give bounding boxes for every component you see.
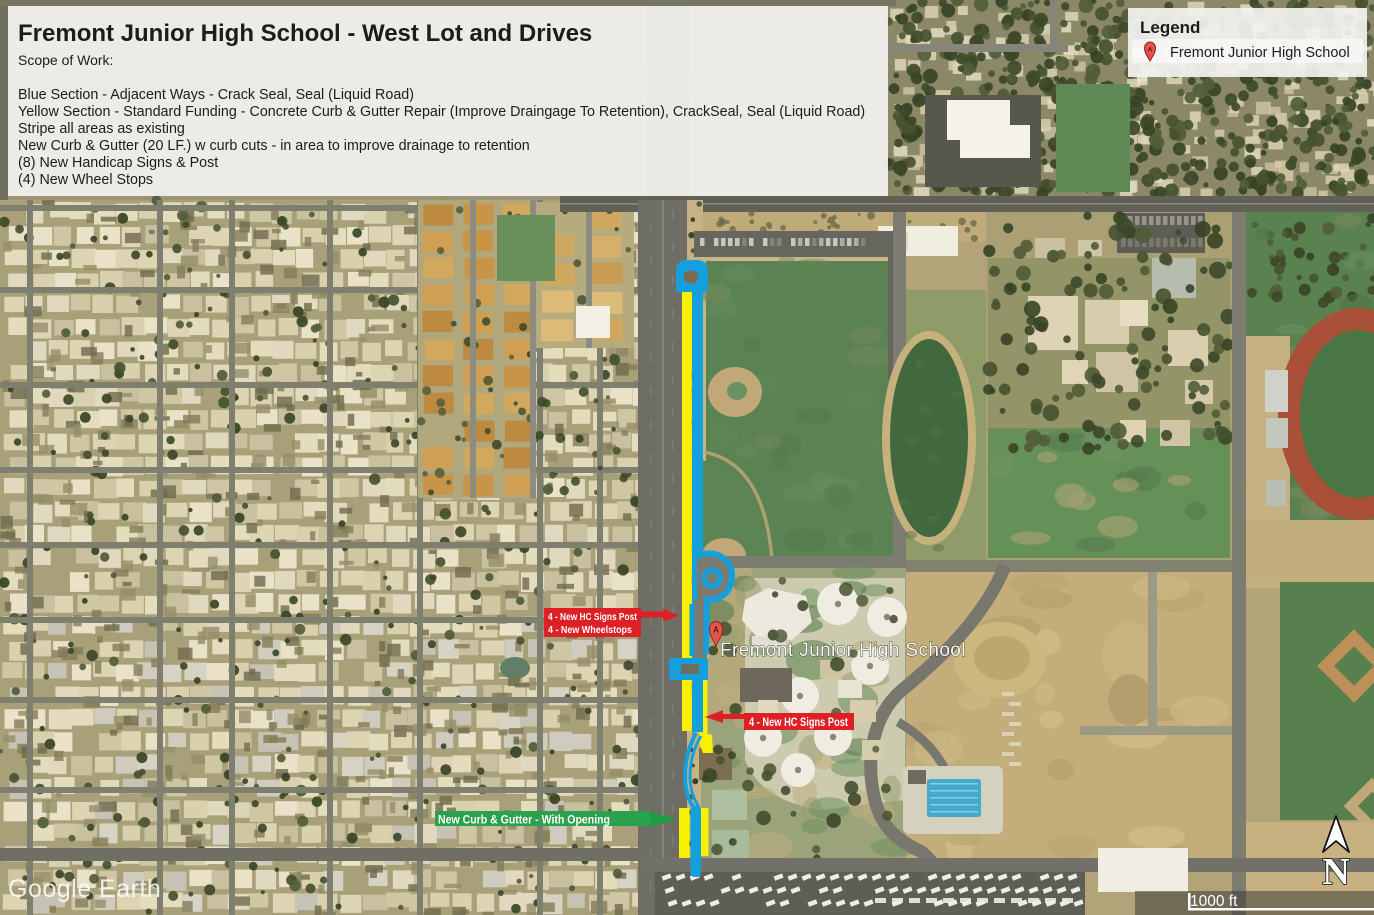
svg-text:A: A — [713, 626, 719, 635]
svg-text:Google Earth: Google Earth — [8, 875, 161, 903]
svg-text:1000 ft: 1000 ft — [1190, 893, 1238, 910]
svg-text:Fremont Junior High School: Fremont Junior High School — [1170, 45, 1350, 61]
svg-text:Yellow Section - Standard Fund: Yellow Section - Standard Funding - Conc… — [18, 104, 865, 120]
svg-text:Fremont Junior High School: Fremont Junior High School — [720, 640, 966, 661]
svg-text:(4) New Wheel Stops: (4) New Wheel Stops — [18, 172, 153, 188]
svg-text:New Curb & Gutter - With Openi: New Curb & Gutter - With Opening — [438, 813, 610, 827]
svg-text:Stripe all areas as existing: Stripe all areas as existing — [18, 121, 185, 137]
svg-text:N: N — [1322, 851, 1349, 893]
svg-text:4 - New Wheelstops: 4 - New Wheelstops — [548, 624, 632, 636]
svg-text:4 - New HC Signs Post: 4 - New HC Signs Post — [548, 611, 637, 623]
svg-text:(8) New Handicap Signs & Post: (8) New Handicap Signs & Post — [18, 155, 218, 171]
svg-text:Legend: Legend — [1140, 18, 1200, 37]
svg-text:Fremont Junior High School - W: Fremont Junior High School - West Lot an… — [18, 20, 592, 47]
svg-text:4 - New HC Signs Post: 4 - New HC Signs Post — [749, 717, 848, 729]
svg-text:Blue Section - Adjacent Ways -: Blue Section - Adjacent Ways - Crack Sea… — [18, 87, 414, 103]
svg-text:New Curb & Gutter (20 LF.) w c: New Curb & Gutter (20 LF.) w curb cuts -… — [18, 138, 530, 154]
svg-text:A: A — [1148, 47, 1153, 54]
svg-text:Scope of Work:: Scope of Work: — [18, 52, 113, 68]
